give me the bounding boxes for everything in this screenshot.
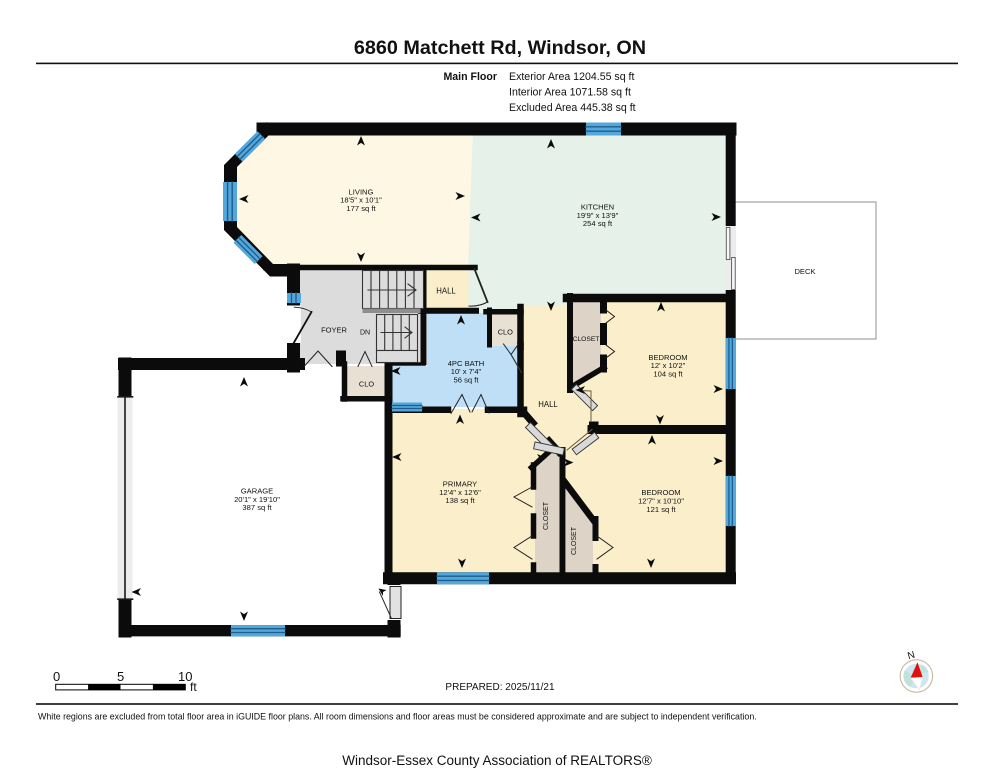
svg-text:104 sq ft: 104 sq ft [653,369,683,378]
svg-text:White regions are excluded fro: White regions are excluded from total fl… [38,712,757,722]
svg-text:254 sq ft: 254 sq ft [583,219,613,228]
svg-text:ft: ft [190,680,197,694]
svg-text:PREPARED: 2025/11/21: PREPARED: 2025/11/21 [445,682,555,693]
svg-text:Excluded Area 445.38 sq ft: Excluded Area 445.38 sq ft [509,102,636,114]
svg-text:177 sq ft: 177 sq ft [346,204,376,213]
svg-text:CLOSET: CLOSET [571,526,578,555]
svg-text:Interior Area 1071.58 sq ft: Interior Area 1071.58 sq ft [509,87,631,99]
svg-text:CLO: CLO [498,328,513,337]
svg-text:Windsor-Essex County Associati: Windsor-Essex County Association of REAL… [342,753,652,768]
svg-text:5: 5 [117,669,124,684]
svg-text:121 sq ft: 121 sq ft [646,505,676,514]
svg-text:DN: DN [360,330,370,337]
svg-text:HALL: HALL [436,286,456,295]
svg-text:HALL: HALL [538,400,558,409]
svg-text:CLOSET: CLOSET [573,336,600,343]
svg-text:387 sq ft: 387 sq ft [242,503,272,512]
svg-text:6860 Matchett Rd, Windsor, ON: 6860 Matchett Rd, Windsor, ON [354,37,646,59]
svg-text:CLO: CLO [359,380,374,389]
svg-text:138 sq ft: 138 sq ft [445,496,475,505]
svg-text:CLOSET: CLOSET [543,501,550,530]
svg-text:Main Floor: Main Floor [443,71,497,83]
svg-text:0: 0 [53,669,60,684]
svg-text:Exterior Area 1204.55 sq ft: Exterior Area 1204.55 sq ft [509,71,634,83]
svg-text:N: N [906,650,916,662]
svg-text:56 sq ft: 56 sq ft [454,375,480,384]
svg-text:FOYER: FOYER [321,326,347,335]
svg-text:DECK: DECK [794,267,815,276]
